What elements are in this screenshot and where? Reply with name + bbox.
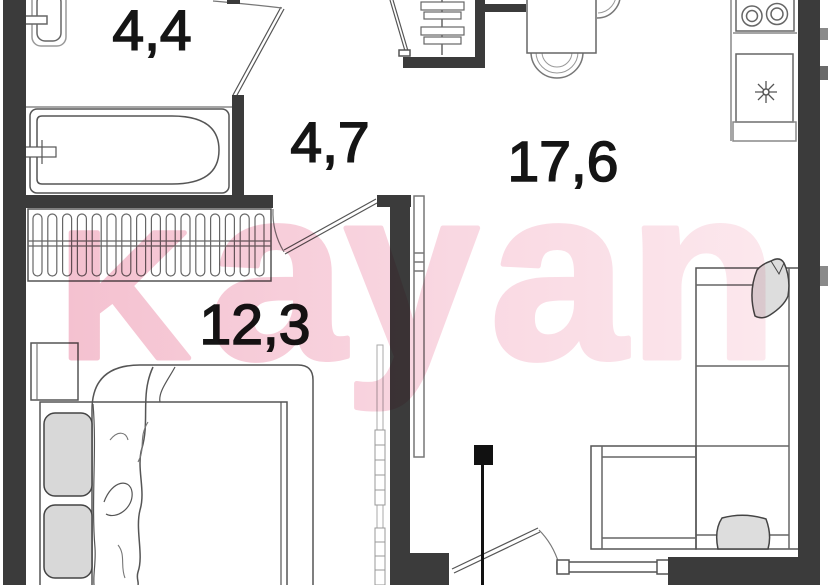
svg-text:K: K [59,193,190,397]
svg-text:y: y [344,136,479,411]
svg-text:a: a [209,136,348,411]
svg-text:a: a [490,136,629,411]
svg-text:n: n [628,136,778,411]
svg-text:4,4: 4,4 [112,0,191,63]
